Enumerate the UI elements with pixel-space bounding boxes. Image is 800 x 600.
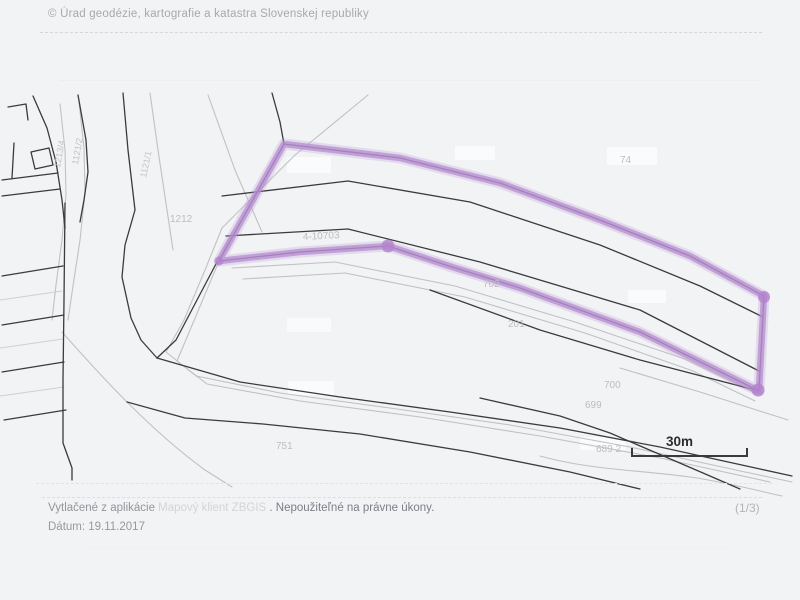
gray-line bbox=[150, 93, 173, 250]
printed-from-text: Vytlačené z aplikácie bbox=[48, 502, 155, 514]
parcel-label: 1212 bbox=[170, 214, 193, 225]
survey-line-label: 4-10703 bbox=[303, 230, 341, 243]
marker-blob bbox=[382, 240, 395, 253]
marker-blob bbox=[215, 257, 224, 266]
building-outline bbox=[8, 104, 28, 120]
scan-patch bbox=[628, 290, 666, 303]
footer-print-note: Vytlačené z aplikácie Mapový klient ZBGI… bbox=[48, 502, 434, 514]
parcel-label: 1121/2 bbox=[70, 137, 85, 165]
boundary-line bbox=[2, 173, 58, 180]
gray-rung bbox=[0, 339, 63, 348]
parcel-label: 201 bbox=[508, 319, 525, 330]
scan-patch bbox=[607, 147, 657, 165]
boundary-line bbox=[430, 290, 759, 391]
highlighted-parcel-marker bbox=[215, 144, 771, 397]
page-indicator: (1/3) bbox=[735, 501, 760, 515]
gray-rung bbox=[0, 387, 64, 396]
boundary-line bbox=[122, 93, 157, 358]
parcel-label: 689 2 bbox=[596, 444, 621, 455]
scan-patch bbox=[455, 146, 495, 160]
boundary-line bbox=[272, 93, 284, 144]
boundary-line bbox=[157, 262, 217, 358]
parcel-label: 699 bbox=[585, 400, 602, 411]
marker-blob bbox=[758, 291, 770, 303]
scan-artifact-line bbox=[36, 483, 772, 484]
boundary-line bbox=[4, 410, 66, 420]
boundary-line bbox=[157, 358, 792, 476]
parcel-label: 74 bbox=[620, 155, 632, 166]
scan-artifact-line bbox=[90, 547, 730, 548]
building-outline bbox=[31, 148, 53, 169]
boundary-line bbox=[2, 266, 63, 276]
boundary-line bbox=[2, 362, 64, 372]
parcel-label: 702 bbox=[483, 279, 500, 290]
gray-line bbox=[540, 456, 782, 496]
boundary-line bbox=[2, 315, 64, 325]
scan-artifact-line bbox=[150, 570, 650, 571]
marker-stroke bbox=[219, 144, 764, 391]
parcel-label: 1121/1 bbox=[138, 150, 153, 178]
gray-rung bbox=[0, 291, 62, 300]
scan-patch bbox=[287, 318, 331, 332]
scan-patch bbox=[287, 157, 331, 173]
parcel-label: 751 bbox=[276, 441, 293, 452]
application-name-text: Mapový klient ZBGIS bbox=[158, 502, 266, 514]
boundary-line bbox=[2, 189, 60, 196]
gray-line bbox=[208, 95, 262, 232]
boundary-line bbox=[127, 402, 640, 489]
print-date-text: Dátum: 19.11.2017 bbox=[48, 521, 145, 533]
legal-disclaimer-text: . Nepoužiteľné na právne úkony. bbox=[269, 502, 434, 514]
scan-patches bbox=[287, 146, 666, 450]
marker-blob bbox=[752, 384, 765, 397]
boundary-line bbox=[12, 143, 14, 178]
scale-bar-label: 30m bbox=[666, 434, 693, 449]
parcel-label: 700 bbox=[604, 380, 621, 391]
gray-line bbox=[62, 332, 232, 487]
footer-separator-line bbox=[42, 497, 762, 498]
scanned-cadastral-map-page: © Úrad geodézie, kartografie a katastra … bbox=[0, 0, 800, 600]
